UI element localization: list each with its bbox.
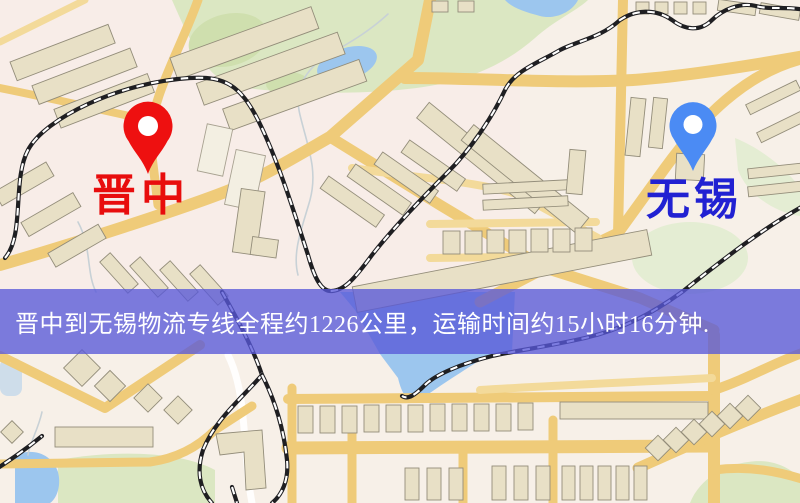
destination-label: 无锡 [646,178,742,222]
destination-pin[interactable] [663,100,723,178]
destination-pin-shape [670,102,717,171]
destination-pin-hole [684,115,703,134]
origin-pin-hole [138,116,158,136]
logistics-route-map: 晋中 无锡 晋中到无锡物流专线全程约1226公里，运输时间约15小时16分钟. [0,0,800,503]
map-canvas[interactable] [0,0,800,503]
route-info-text: 晋中到无锡物流专线全程约1226公里，运输时间约15小时16分钟. [0,304,710,339]
origin-label: 晋中 [92,174,190,218]
origin-pin[interactable] [118,101,178,179]
route-info-banner: 晋中到无锡物流专线全程约1226公里，运输时间约15小时16分钟. [0,289,800,354]
origin-pin-shape [124,102,173,174]
